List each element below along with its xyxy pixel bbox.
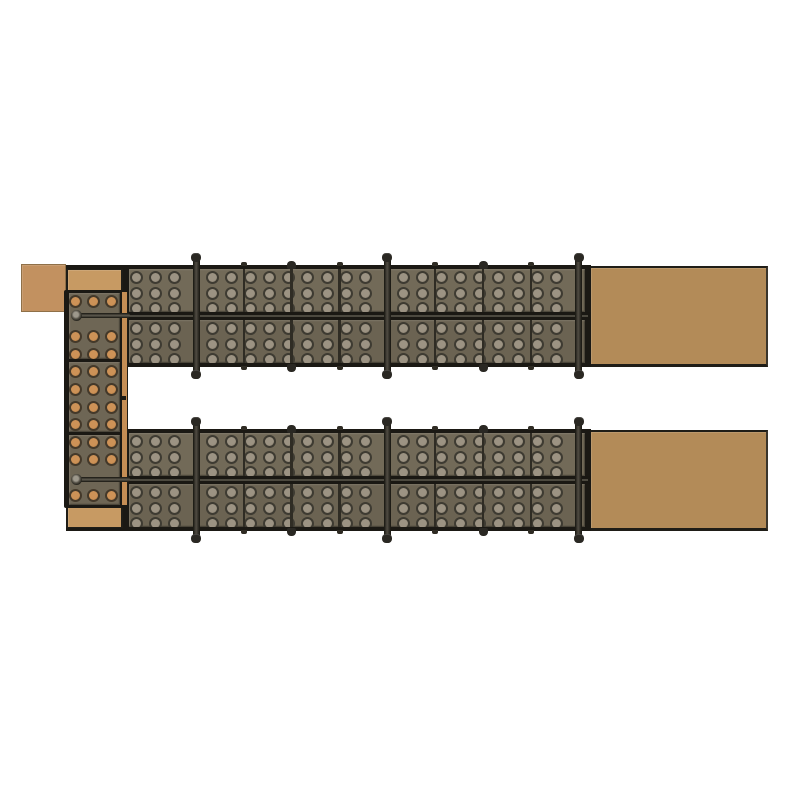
beam-panel-hole bbox=[454, 287, 467, 300]
beam-panel-hole bbox=[168, 502, 181, 515]
beam-panel-hole bbox=[206, 486, 219, 499]
beam-panel-hole bbox=[531, 287, 544, 300]
beam-panel-hole bbox=[130, 338, 143, 351]
beam-panel-hole bbox=[149, 287, 162, 300]
beam-edge-extension bbox=[66, 265, 123, 269]
beam-panel-hole bbox=[531, 451, 544, 464]
column-panel-hole bbox=[69, 401, 82, 414]
beam-panel-hole bbox=[416, 502, 429, 515]
clamp-tick bbox=[528, 426, 534, 430]
beam-panel-hole bbox=[206, 435, 219, 448]
beam-panel-hole bbox=[149, 502, 162, 515]
beam-panel-hole bbox=[321, 271, 334, 284]
beam-panel-hole bbox=[168, 338, 181, 351]
beam-panel-hole bbox=[340, 287, 353, 300]
beam-panel-hole bbox=[149, 435, 162, 448]
column-panel-hole bbox=[69, 383, 82, 396]
beam-panel-hole bbox=[454, 271, 467, 284]
column-panel-hole bbox=[87, 401, 100, 414]
rod-end-cap bbox=[382, 253, 392, 262]
beam-panel-hole bbox=[340, 338, 353, 351]
beam-panel-hole bbox=[263, 451, 276, 464]
column-panel-hole bbox=[105, 436, 118, 449]
waler-rod bbox=[575, 417, 582, 543]
beam-panel-hole bbox=[130, 451, 143, 464]
figure-caption: Modular steel formwork assembly with per… bbox=[0, 0, 1, 1]
beam-panel-hole bbox=[512, 322, 525, 335]
beam-panel-hole bbox=[225, 338, 238, 351]
beam-panel-hole bbox=[359, 271, 372, 284]
clamp-tick bbox=[528, 366, 534, 370]
beam-panel-hole bbox=[321, 287, 334, 300]
beam-panel-hole bbox=[473, 486, 486, 499]
timber-block-cap-top bbox=[66, 268, 123, 293]
column-panel-hole bbox=[105, 401, 118, 414]
beam-panel-hole bbox=[435, 287, 448, 300]
column-panel-hole bbox=[69, 436, 82, 449]
beam-panel-hole bbox=[301, 322, 314, 335]
beam-panel-hole bbox=[416, 271, 429, 284]
beam-panel-hole bbox=[225, 451, 238, 464]
clamp-tick bbox=[337, 366, 343, 370]
beam-panel-hole bbox=[473, 435, 486, 448]
beam-panel-hole bbox=[550, 322, 563, 335]
beam-panel-hole bbox=[512, 502, 525, 515]
clamp-tick bbox=[432, 426, 438, 430]
beam-panel-hole bbox=[435, 451, 448, 464]
beam-panel-hole bbox=[321, 435, 334, 448]
beam-panel-hole bbox=[130, 271, 143, 284]
clamp-tick bbox=[432, 366, 438, 370]
timber-block-right-bottom bbox=[591, 430, 768, 532]
tie-nub bbox=[287, 261, 296, 269]
beam-panel-hole bbox=[282, 338, 295, 351]
beam-panel-hole bbox=[263, 287, 276, 300]
beam-panel-hole bbox=[550, 435, 563, 448]
tie-rod bbox=[78, 313, 130, 318]
waler-rod bbox=[384, 417, 391, 543]
beam-panel-hole bbox=[301, 486, 314, 499]
beam-panel-hole bbox=[473, 287, 486, 300]
column-panel-hole bbox=[105, 489, 118, 502]
beam-panel-hole bbox=[492, 486, 505, 499]
beam-panel-hole bbox=[225, 322, 238, 335]
beam-panel-hole bbox=[206, 287, 219, 300]
beam-panel-hole bbox=[321, 322, 334, 335]
beam-panel-hole bbox=[492, 502, 505, 515]
beam-panel-hole bbox=[359, 486, 372, 499]
beam-panel-hole bbox=[397, 287, 410, 300]
beam-panel-hole bbox=[397, 338, 410, 351]
tie-nub bbox=[287, 425, 296, 433]
beam-panel-hole bbox=[435, 486, 448, 499]
beam-panel-hole bbox=[397, 322, 410, 335]
beam-panel-hole bbox=[473, 271, 486, 284]
beam-panel-hole bbox=[263, 502, 276, 515]
beam-panel-hole bbox=[454, 502, 467, 515]
beam-panel-hole bbox=[321, 451, 334, 464]
beam-panel-hole bbox=[225, 502, 238, 515]
beam-panel-hole bbox=[397, 486, 410, 499]
beam-panel-hole bbox=[244, 502, 257, 515]
beam-panel-hole bbox=[301, 435, 314, 448]
beam-panel-hole bbox=[149, 322, 162, 335]
timber-block-corner-left bbox=[21, 264, 66, 313]
clamp-tick bbox=[241, 262, 247, 266]
clamp-tick bbox=[528, 262, 534, 266]
beam-panel-hole bbox=[225, 271, 238, 284]
beam-panel-hole bbox=[492, 322, 505, 335]
beam-panel-hole bbox=[340, 271, 353, 284]
beam-panel-hole bbox=[512, 486, 525, 499]
render-canvas: Modular steel formwork assembly with per… bbox=[0, 0, 800, 800]
beam-panel-hole bbox=[282, 451, 295, 464]
beam-panel-hole bbox=[301, 338, 314, 351]
beam-panel-hole bbox=[168, 435, 181, 448]
clamp-tick bbox=[241, 366, 247, 370]
column-panel-hole bbox=[105, 383, 118, 396]
beam-panel-hole bbox=[416, 451, 429, 464]
beam-panel-hole bbox=[244, 435, 257, 448]
beam-panel-hole bbox=[263, 435, 276, 448]
beam-panel-hole bbox=[512, 451, 525, 464]
column-panel-hole bbox=[87, 489, 100, 502]
beam-panel-hole bbox=[397, 271, 410, 284]
beam-panel-hole bbox=[244, 486, 257, 499]
timber-block-cap-bottom bbox=[66, 505, 123, 530]
beam-panel-hole bbox=[225, 287, 238, 300]
tie-nub bbox=[287, 364, 296, 372]
rod-end-cap bbox=[191, 534, 201, 543]
beam-panel-hole bbox=[244, 338, 257, 351]
rod-end-cap bbox=[574, 370, 584, 379]
beam-panel-hole bbox=[359, 502, 372, 515]
beam-panel-hole bbox=[550, 287, 563, 300]
beam-panel-hole bbox=[206, 451, 219, 464]
beam-panel-hole bbox=[168, 287, 181, 300]
rod-end-cap bbox=[191, 370, 201, 379]
beam-panel-hole bbox=[397, 451, 410, 464]
beam-panel-hole bbox=[206, 271, 219, 284]
beam-panel-hole bbox=[168, 322, 181, 335]
beam-panel-hole bbox=[263, 322, 276, 335]
timber-block-right-top bbox=[591, 266, 768, 368]
beam-panel-hole bbox=[340, 435, 353, 448]
clamp-tick bbox=[528, 530, 534, 534]
column-panel-joint bbox=[64, 359, 124, 362]
tie-nub bbox=[479, 528, 488, 536]
beam-panel-hole bbox=[397, 435, 410, 448]
column-panel-hole bbox=[87, 436, 100, 449]
beam-panel-hole bbox=[435, 435, 448, 448]
beam-panel-hole bbox=[492, 435, 505, 448]
beam-panel-hole bbox=[512, 287, 525, 300]
beam-panel-hole bbox=[168, 486, 181, 499]
beam-panel-hole bbox=[397, 502, 410, 515]
rod-end-cap bbox=[382, 370, 392, 379]
beam-panel-hole bbox=[512, 435, 525, 448]
beam-panel-hole bbox=[321, 486, 334, 499]
beam-panel-hole bbox=[206, 502, 219, 515]
beam-panel-hole bbox=[473, 322, 486, 335]
beam-panel-hole bbox=[340, 451, 353, 464]
column-panel-hole bbox=[69, 295, 82, 308]
beam-panel-hole bbox=[473, 502, 486, 515]
column-panel-joint bbox=[64, 432, 124, 435]
rod-end-cap bbox=[382, 417, 392, 426]
beam-panel-hole bbox=[149, 271, 162, 284]
beam-panel-hole bbox=[359, 287, 372, 300]
beam-panel-hole bbox=[282, 486, 295, 499]
beam-panel-hole bbox=[282, 287, 295, 300]
beam-panel-hole bbox=[531, 322, 544, 335]
beam-panel-hole bbox=[206, 322, 219, 335]
beam-panel-hole bbox=[359, 435, 372, 448]
beam-panel-hole bbox=[531, 271, 544, 284]
beam-panel-hole bbox=[149, 451, 162, 464]
column-panel-hole bbox=[105, 295, 118, 308]
beam-panel-hole bbox=[321, 502, 334, 515]
beam-panel-hole bbox=[282, 502, 295, 515]
clamp-tick bbox=[337, 262, 343, 266]
tie-nub bbox=[479, 425, 488, 433]
beam-panel-hole bbox=[340, 502, 353, 515]
beam-panel-hole bbox=[282, 322, 295, 335]
beam-panel-hole bbox=[301, 451, 314, 464]
beam-panel-hole bbox=[550, 271, 563, 284]
strip-clamp-notch bbox=[122, 396, 126, 401]
beam-panel-hole bbox=[263, 338, 276, 351]
beam-panel-hole bbox=[359, 338, 372, 351]
beam-panel-hole bbox=[244, 451, 257, 464]
rod-end-cap bbox=[191, 253, 201, 262]
beam-panel-hole bbox=[130, 502, 143, 515]
waler-rod bbox=[384, 253, 391, 379]
beam-panel-hole bbox=[149, 486, 162, 499]
clamp-tick bbox=[241, 530, 247, 534]
beam-panel-hole bbox=[512, 271, 525, 284]
clamp-tick bbox=[337, 530, 343, 534]
beam-panel-hole bbox=[301, 271, 314, 284]
beam-panel-hole bbox=[282, 435, 295, 448]
beam-panel-hole bbox=[321, 338, 334, 351]
beam-panel-hole bbox=[454, 322, 467, 335]
waler-rod bbox=[193, 417, 200, 543]
clamp-tick bbox=[337, 426, 343, 430]
beam-panel-hole bbox=[492, 271, 505, 284]
beam-panel-hole bbox=[531, 502, 544, 515]
beam-panel-hole bbox=[550, 451, 563, 464]
beam-panel-hole bbox=[531, 338, 544, 351]
beam-panel-hole bbox=[263, 486, 276, 499]
beam-panel-hole bbox=[416, 287, 429, 300]
column-panel-hole bbox=[87, 295, 100, 308]
beam-panel-hole bbox=[435, 338, 448, 351]
beam-panel-hole bbox=[454, 486, 467, 499]
beam-panel-hole bbox=[416, 435, 429, 448]
beam-panel-hole bbox=[531, 486, 544, 499]
beam-panel-hole bbox=[359, 322, 372, 335]
beam-panel-hole bbox=[149, 338, 162, 351]
rod-end-cap bbox=[574, 253, 584, 262]
beam-panel-hole bbox=[512, 338, 525, 351]
beam-edge-extension bbox=[66, 528, 123, 532]
beam-panel-hole bbox=[130, 486, 143, 499]
tie-rod bbox=[78, 477, 130, 482]
beam-panel-hole bbox=[340, 486, 353, 499]
beam-panel-hole bbox=[416, 486, 429, 499]
beam-panel-hole bbox=[168, 451, 181, 464]
beam-panel-hole bbox=[244, 322, 257, 335]
rod-end-cap bbox=[382, 534, 392, 543]
tie-rod-washer bbox=[71, 474, 82, 485]
beam-panel-hole bbox=[550, 502, 563, 515]
beam-panel-hole bbox=[435, 502, 448, 515]
beam-panel-hole bbox=[130, 435, 143, 448]
rod-end-cap bbox=[574, 417, 584, 426]
beam-panel-hole bbox=[492, 338, 505, 351]
beam-panel-hole bbox=[168, 271, 181, 284]
beam-panel-hole bbox=[454, 338, 467, 351]
beam-panel-hole bbox=[225, 435, 238, 448]
beam-panel-hole bbox=[225, 486, 238, 499]
beam-panel-hole bbox=[473, 338, 486, 351]
tie-nub bbox=[287, 528, 296, 536]
beam-panel-hole bbox=[531, 435, 544, 448]
waler-rod bbox=[193, 253, 200, 379]
clamp-tick bbox=[432, 530, 438, 534]
beam-panel-hole bbox=[359, 451, 372, 464]
beam-panel-hole bbox=[244, 271, 257, 284]
beam-panel-hole bbox=[301, 502, 314, 515]
tie-nub bbox=[479, 261, 488, 269]
beam-panel-hole bbox=[435, 322, 448, 335]
beam-panel-hole bbox=[416, 322, 429, 335]
rod-end-cap bbox=[574, 534, 584, 543]
beam-panel-hole bbox=[130, 322, 143, 335]
beam-panel-hole bbox=[550, 338, 563, 351]
column-panel-hole bbox=[87, 383, 100, 396]
beam-panel-hole bbox=[263, 271, 276, 284]
beam-panel-hole bbox=[492, 451, 505, 464]
beam-panel-hole bbox=[473, 451, 486, 464]
clamp-tick bbox=[241, 426, 247, 430]
beam-panel-hole bbox=[435, 271, 448, 284]
tie-nub bbox=[479, 364, 488, 372]
beam-panel-hole bbox=[340, 322, 353, 335]
beam-panel-hole bbox=[301, 287, 314, 300]
beam-panel-hole bbox=[454, 451, 467, 464]
column-panel-hole bbox=[69, 489, 82, 502]
beam-panel-hole bbox=[454, 435, 467, 448]
beam-panel-hole bbox=[206, 338, 219, 351]
clamp-tick bbox=[432, 262, 438, 266]
beam-panel-hole bbox=[130, 287, 143, 300]
beam-panel-hole bbox=[282, 271, 295, 284]
beam-panel-hole bbox=[244, 287, 257, 300]
waler-rod bbox=[575, 253, 582, 379]
beam-panel-hole bbox=[492, 287, 505, 300]
beam-panel-hole bbox=[550, 486, 563, 499]
tie-rod-washer bbox=[71, 310, 82, 321]
rod-end-cap bbox=[191, 417, 201, 426]
beam-panel-hole bbox=[416, 338, 429, 351]
